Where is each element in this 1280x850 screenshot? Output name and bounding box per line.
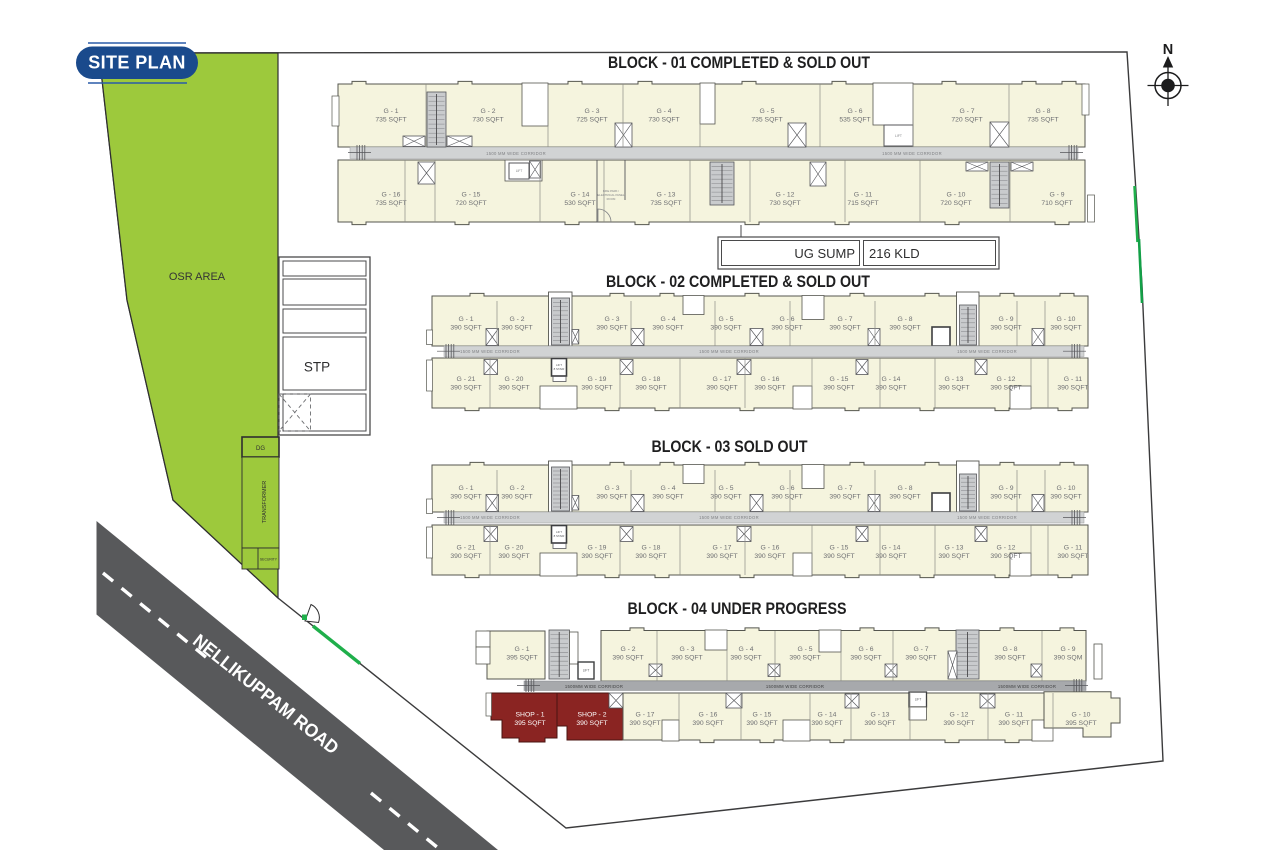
svg-text:G - 10: G - 10 bbox=[1072, 712, 1091, 719]
svg-text:390 SQFT: 390 SQFT bbox=[990, 553, 1021, 560]
svg-text:G - 4: G - 4 bbox=[660, 316, 675, 323]
svg-text:G - 16: G - 16 bbox=[699, 712, 718, 719]
svg-text:G - 8: G - 8 bbox=[1002, 646, 1017, 653]
svg-text:LIFT: LIFT bbox=[915, 698, 922, 702]
svg-text:G - 19: G - 19 bbox=[588, 545, 607, 552]
svg-text:216 KLD: 216 KLD bbox=[869, 246, 920, 261]
svg-text:G - 20: G - 20 bbox=[505, 376, 524, 383]
svg-text:G - 11: G - 11 bbox=[1005, 712, 1024, 719]
svg-text:G - 3: G - 3 bbox=[584, 108, 599, 115]
svg-text:G - 2: G - 2 bbox=[480, 108, 495, 115]
svg-text:OSR AREA: OSR AREA bbox=[169, 271, 226, 283]
svg-text:G - 1: G - 1 bbox=[514, 646, 529, 653]
svg-text:390 SQFT: 390 SQFT bbox=[652, 494, 683, 501]
svg-text:G - 10: G - 10 bbox=[1057, 485, 1076, 492]
svg-text:G - 1: G - 1 bbox=[458, 485, 473, 492]
svg-text:390 SQFT: 390 SQFT bbox=[864, 720, 895, 727]
svg-text:390 SQFT: 390 SQFT bbox=[754, 385, 785, 392]
svg-text:390 SQFT: 390 SQFT bbox=[938, 553, 969, 560]
svg-text:390 SQFT: 390 SQFT bbox=[596, 325, 627, 332]
svg-text:730 SQFT: 730 SQFT bbox=[769, 200, 800, 207]
svg-text:1500MM WIDE CORRIDOR: 1500MM WIDE CORRIDOR bbox=[998, 684, 1056, 689]
svg-text:STP: STP bbox=[304, 360, 330, 375]
svg-text:390 SQFT: 390 SQFT bbox=[754, 553, 785, 560]
svg-text:G - 14: G - 14 bbox=[882, 376, 901, 383]
svg-text:G - 2: G - 2 bbox=[509, 316, 524, 323]
svg-text:G - 12: G - 12 bbox=[950, 712, 969, 719]
svg-text:G - 13: G - 13 bbox=[945, 376, 964, 383]
svg-text:SHOP - 1: SHOP - 1 bbox=[516, 712, 545, 719]
svg-text:G - 7: G - 7 bbox=[837, 485, 852, 492]
svg-text:720 SQFT: 720 SQFT bbox=[940, 200, 971, 207]
svg-text:G - 5: G - 5 bbox=[759, 108, 774, 115]
svg-text:735 SQFT: 735 SQFT bbox=[1027, 117, 1058, 124]
svg-text:390 SQFT: 390 SQFT bbox=[998, 720, 1029, 727]
svg-text:1500 MM WIDE CORRIDOR: 1500 MM WIDE CORRIDOR bbox=[957, 515, 1017, 520]
svg-text:G - 9: G - 9 bbox=[998, 485, 1013, 492]
svg-text:G - 17: G - 17 bbox=[713, 545, 732, 552]
svg-text:390 SQFT: 390 SQFT bbox=[692, 720, 723, 727]
svg-text:725 SQFT: 725 SQFT bbox=[576, 117, 607, 124]
svg-text:390 SQFT: 390 SQFT bbox=[450, 325, 481, 332]
svg-text:BLOCK - 03 SOLD OUT: BLOCK - 03 SOLD OUT bbox=[652, 437, 809, 456]
svg-text:390 SQFT: 390 SQFT bbox=[671, 655, 702, 662]
svg-text:G - 7: G - 7 bbox=[913, 646, 928, 653]
svg-text:G - 19: G - 19 bbox=[588, 376, 607, 383]
svg-text:1500MM WIDE CORRIDOR: 1500MM WIDE CORRIDOR bbox=[565, 684, 623, 689]
svg-text:G - 16: G - 16 bbox=[382, 192, 401, 199]
svg-text:1500 MM WIDE CORRIDOR: 1500 MM WIDE CORRIDOR bbox=[882, 151, 942, 156]
svg-text:G - 1: G - 1 bbox=[383, 108, 398, 115]
svg-text:G - 13: G - 13 bbox=[657, 192, 676, 199]
svg-text:UG SUMP: UG SUMP bbox=[794, 246, 855, 261]
svg-text:390 SQFT: 390 SQFT bbox=[850, 655, 881, 662]
svg-text:G - 15: G - 15 bbox=[830, 545, 849, 552]
svg-text:G - 21: G - 21 bbox=[457, 545, 476, 552]
svg-text:390 SQFT: 390 SQFT bbox=[789, 655, 820, 662]
svg-text:390 SQFT: 390 SQFT bbox=[771, 494, 802, 501]
svg-text:G - 12: G - 12 bbox=[997, 376, 1016, 383]
svg-text:390 SQFT: 390 SQFT bbox=[596, 494, 627, 501]
svg-text:G - 21: G - 21 bbox=[457, 376, 476, 383]
svg-text:G - 15: G - 15 bbox=[830, 376, 849, 383]
svg-text:390 SQFT: 390 SQFT bbox=[450, 553, 481, 560]
svg-text:390 SQFT: 390 SQFT bbox=[498, 553, 529, 560]
svg-text:G - 4: G - 4 bbox=[656, 108, 671, 115]
svg-text:G - 6: G - 6 bbox=[847, 108, 862, 115]
svg-text:1500 MM WIDE CORRIDOR: 1500 MM WIDE CORRIDOR bbox=[957, 349, 1017, 354]
svg-text:G - 16: G - 16 bbox=[761, 545, 780, 552]
svg-text:390 SQFT: 390 SQFT bbox=[811, 720, 842, 727]
svg-text:G - 18: G - 18 bbox=[642, 376, 661, 383]
svg-text:535 SQFT: 535 SQFT bbox=[839, 117, 870, 124]
svg-text:G - 9: G - 9 bbox=[998, 316, 1013, 323]
svg-text:SHOP - 2: SHOP - 2 bbox=[578, 712, 607, 719]
svg-text:390 SQFT: 390 SQFT bbox=[875, 385, 906, 392]
svg-text:G - 6: G - 6 bbox=[858, 646, 873, 653]
svg-text:390 SQFT: 390 SQFT bbox=[635, 385, 666, 392]
svg-text:390 SQFT: 390 SQFT bbox=[710, 494, 741, 501]
svg-text:SECURITY: SECURITY bbox=[260, 558, 278, 562]
svg-text:G - 4: G - 4 bbox=[660, 485, 675, 492]
svg-text:G - 9: G - 9 bbox=[1060, 646, 1075, 653]
svg-text:390 SQFT: 390 SQFT bbox=[889, 325, 920, 332]
svg-text:710 SQFT: 710 SQFT bbox=[1041, 200, 1072, 207]
svg-text:390 SQFT: 390 SQFT bbox=[994, 655, 1025, 662]
svg-text:390 SQFT: 390 SQFT bbox=[889, 494, 920, 501]
svg-text:N: N bbox=[1163, 42, 1173, 58]
svg-text:G - 5: G - 5 bbox=[718, 485, 733, 492]
svg-text:390 SQFT: 390 SQFT bbox=[498, 385, 529, 392]
svg-text:BLOCK - 02 COMPLETED & SOLD OU: BLOCK - 02 COMPLETED & SOLD OUT bbox=[606, 272, 871, 291]
svg-text:G - 16: G - 16 bbox=[761, 376, 780, 383]
svg-text:390 SQFT: 390 SQFT bbox=[938, 385, 969, 392]
svg-text:395 SQFT: 395 SQFT bbox=[514, 720, 545, 727]
svg-text:G - 14: G - 14 bbox=[882, 545, 901, 552]
svg-text:G - 11: G - 11 bbox=[854, 192, 873, 199]
svg-text:G - 12: G - 12 bbox=[776, 192, 795, 199]
svg-text:G - 2: G - 2 bbox=[620, 646, 635, 653]
svg-text:390 SQFT: 390 SQFT bbox=[990, 385, 1021, 392]
svg-text:390 SQFT: 390 SQFT bbox=[501, 325, 532, 332]
svg-text:735 SQFT: 735 SQFT bbox=[375, 117, 406, 124]
svg-text:720 SQFT: 720 SQFT bbox=[951, 117, 982, 124]
svg-text:390 SQFT: 390 SQFT bbox=[450, 385, 481, 392]
svg-text:G - 7: G - 7 bbox=[959, 108, 974, 115]
svg-text:390 SQFT: 390 SQFT bbox=[730, 655, 761, 662]
svg-text:G - 5: G - 5 bbox=[718, 316, 733, 323]
svg-text:G - 6: G - 6 bbox=[779, 316, 794, 323]
svg-text:G - 10: G - 10 bbox=[1057, 316, 1076, 323]
svg-text:390 SQFT: 390 SQFT bbox=[576, 720, 607, 727]
svg-text:390 SQFT: 390 SQFT bbox=[905, 655, 936, 662]
svg-text:390 SQFT: 390 SQFT bbox=[823, 553, 854, 560]
svg-text:G - 9: G - 9 bbox=[1049, 192, 1064, 199]
svg-text:G - 14: G - 14 bbox=[818, 712, 837, 719]
svg-text:390 SQFT: 390 SQFT bbox=[652, 325, 683, 332]
svg-text:G - 4: G - 4 bbox=[738, 646, 753, 653]
svg-text:390 SQFT: 390 SQFT bbox=[629, 720, 660, 727]
svg-text:390 SQFT: 390 SQFT bbox=[990, 494, 1021, 501]
svg-text:390 SQFT: 390 SQFT bbox=[829, 494, 860, 501]
svg-text:G - 3: G - 3 bbox=[679, 646, 694, 653]
svg-text:390 SQFT: 390 SQFT bbox=[706, 553, 737, 560]
svg-text:G - 13: G - 13 bbox=[945, 545, 964, 552]
svg-text:G - 3: G - 3 bbox=[604, 485, 619, 492]
svg-text:390 SQFT: 390 SQFT bbox=[1050, 494, 1081, 501]
svg-text:G - 10: G - 10 bbox=[947, 192, 966, 199]
svg-text:G - 17: G - 17 bbox=[713, 376, 732, 383]
svg-text:395 SQFT: 395 SQFT bbox=[506, 655, 537, 662]
svg-text:G - 8: G - 8 bbox=[897, 485, 912, 492]
svg-text:390 SQFT: 390 SQFT bbox=[635, 553, 666, 560]
svg-text:390 SQFT: 390 SQFT bbox=[710, 325, 741, 332]
svg-text:BLOCK - 04 UNDER PROGRESS: BLOCK - 04 UNDER PROGRESS bbox=[628, 599, 847, 618]
svg-text:1500 MM WIDE CORRIDOR: 1500 MM WIDE CORRIDOR bbox=[699, 349, 759, 354]
svg-text:390 SQFT: 390 SQFT bbox=[501, 494, 532, 501]
svg-text:G - 7: G - 7 bbox=[837, 316, 852, 323]
svg-text:ROOM: ROOM bbox=[607, 197, 616, 201]
svg-text:390 SQM: 390 SQM bbox=[1054, 655, 1083, 662]
svg-text:390 SQFT: 390 SQFT bbox=[581, 385, 612, 392]
svg-text:1500 MM WIDE CORRIDOR: 1500 MM WIDE CORRIDOR bbox=[699, 515, 759, 520]
svg-text:390 SQFT: 390 SQFT bbox=[829, 325, 860, 332]
svg-text:G - 6: G - 6 bbox=[779, 485, 794, 492]
svg-text:G - 11: G - 11 bbox=[1064, 376, 1083, 383]
svg-text:1500MM WIDE CORRIDOR: 1500MM WIDE CORRIDOR bbox=[766, 684, 824, 689]
svg-text:8 STAIR: 8 STAIR bbox=[554, 534, 565, 538]
svg-text:TRANSFORMER: TRANSFORMER bbox=[262, 481, 268, 524]
svg-text:390 SQFT: 390 SQFT bbox=[1057, 385, 1088, 392]
svg-text:8 STAIR: 8 STAIR bbox=[554, 367, 565, 371]
svg-text:G - 14: G - 14 bbox=[571, 192, 590, 199]
svg-text:730 SQFT: 730 SQFT bbox=[472, 117, 503, 124]
svg-text:530 SQFT: 530 SQFT bbox=[564, 200, 595, 207]
svg-text:720 SQFT: 720 SQFT bbox=[455, 200, 486, 207]
svg-text:G - 5: G - 5 bbox=[797, 646, 812, 653]
svg-text:LIFT: LIFT bbox=[895, 134, 902, 138]
svg-text:715 SQFT: 715 SQFT bbox=[847, 200, 878, 207]
svg-text:G - 2: G - 2 bbox=[509, 485, 524, 492]
svg-text:G - 17: G - 17 bbox=[636, 712, 655, 719]
svg-text:390 SQFT: 390 SQFT bbox=[771, 325, 802, 332]
svg-text:735 SQFT: 735 SQFT bbox=[375, 200, 406, 207]
svg-text:1500 MM WIDE CORRIDOR: 1500 MM WIDE CORRIDOR bbox=[460, 515, 520, 520]
svg-text:390 SQFT: 390 SQFT bbox=[823, 385, 854, 392]
svg-text:G - 15: G - 15 bbox=[462, 192, 481, 199]
svg-text:G - 1: G - 1 bbox=[458, 316, 473, 323]
svg-text:DG: DG bbox=[256, 446, 265, 452]
svg-text:G - 13: G - 13 bbox=[871, 712, 890, 719]
svg-text:1500 MM WIDE CORRIDOR: 1500 MM WIDE CORRIDOR bbox=[460, 349, 520, 354]
svg-text:735 SQFT: 735 SQFT bbox=[751, 117, 782, 124]
svg-text:390 SQFT: 390 SQFT bbox=[450, 494, 481, 501]
svg-text:LIFT: LIFT bbox=[516, 169, 523, 173]
svg-text:730 SQFT: 730 SQFT bbox=[648, 117, 679, 124]
svg-text:390 SQFT: 390 SQFT bbox=[1057, 553, 1088, 560]
svg-text:735 SQFT: 735 SQFT bbox=[650, 200, 681, 207]
svg-text:LIFT: LIFT bbox=[583, 669, 590, 673]
svg-text:G - 8: G - 8 bbox=[897, 316, 912, 323]
svg-text:390 SQFT: 390 SQFT bbox=[746, 720, 777, 727]
svg-text:390 SQFT: 390 SQFT bbox=[706, 385, 737, 392]
svg-text:395 SQFT: 395 SQFT bbox=[1065, 720, 1096, 727]
svg-text:SITE PLAN: SITE PLAN bbox=[88, 53, 186, 73]
svg-text:G - 11: G - 11 bbox=[1064, 545, 1083, 552]
svg-text:390 SQFT: 390 SQFT bbox=[943, 720, 974, 727]
svg-text:BLOCK - 01 COMPLETED & SOLD OU: BLOCK - 01 COMPLETED & SOLD OUT bbox=[608, 53, 870, 72]
svg-text:1500 MM WIDE CORRIDOR: 1500 MM WIDE CORRIDOR bbox=[486, 151, 546, 156]
svg-text:G - 20: G - 20 bbox=[505, 545, 524, 552]
svg-text:390 SQFT: 390 SQFT bbox=[1050, 325, 1081, 332]
svg-text:G - 8: G - 8 bbox=[1035, 108, 1050, 115]
svg-text:G - 12: G - 12 bbox=[997, 545, 1016, 552]
svg-text:390 SQFT: 390 SQFT bbox=[612, 655, 643, 662]
svg-text:G - 18: G - 18 bbox=[642, 545, 661, 552]
svg-text:390 SQFT: 390 SQFT bbox=[990, 325, 1021, 332]
svg-text:390 SQFT: 390 SQFT bbox=[875, 553, 906, 560]
svg-text:G - 15: G - 15 bbox=[753, 712, 772, 719]
svg-text:390 SQFT: 390 SQFT bbox=[581, 553, 612, 560]
svg-text:G - 3: G - 3 bbox=[604, 316, 619, 323]
